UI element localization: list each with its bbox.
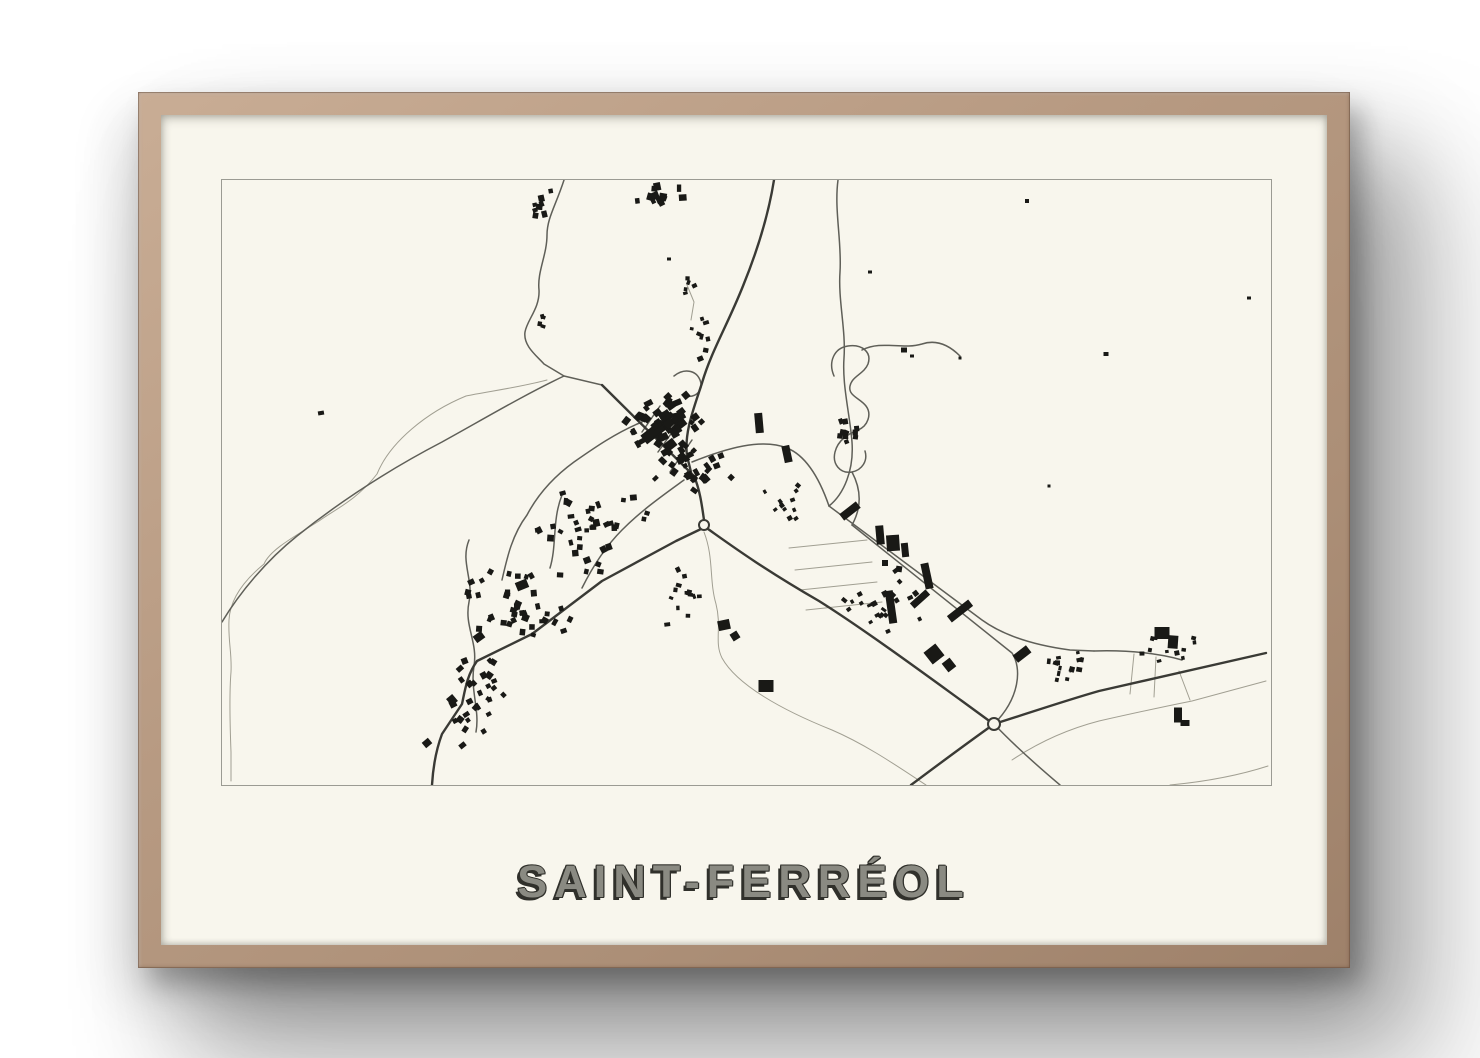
poster-paper: SAINT-FERRÉOL — [161, 115, 1327, 945]
wall-background: SAINT-FERRÉOL — [0, 0, 1480, 1058]
poster-title: SAINT-FERRÉOL — [161, 859, 1327, 904]
picture-frame: SAINT-FERRÉOL — [138, 92, 1350, 968]
town-map-figure — [222, 180, 1271, 785]
map-border — [221, 179, 1272, 786]
